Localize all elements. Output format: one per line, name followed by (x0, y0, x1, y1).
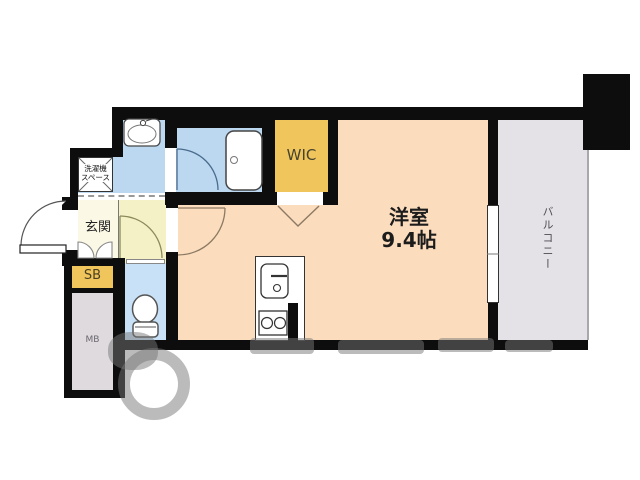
balcony-rail-line (587, 120, 589, 340)
wall-segment (70, 157, 78, 200)
wall-segment (112, 107, 123, 148)
wall-segment (488, 107, 498, 208)
balcony-label: バルコニー (533, 178, 553, 298)
wall-segment (62, 197, 78, 210)
wall-segment (166, 197, 178, 208)
laundry-line2: スペース (81, 173, 110, 182)
wall-segment (262, 120, 275, 192)
entrance-label: 玄関 (73, 221, 123, 236)
shoe-box-label: SB (72, 269, 113, 284)
wall-segment (166, 252, 178, 350)
wall-segment (113, 258, 125, 398)
room-washroom-nook (123, 120, 165, 158)
wall-segment (488, 302, 498, 350)
room-bathroom (176, 127, 262, 192)
wall-segment (64, 390, 122, 398)
wic-label: WIC (275, 147, 328, 164)
wall-segment (64, 258, 72, 398)
sliding-door-dashed-line (78, 195, 165, 197)
room-hallway (119, 200, 166, 263)
main-room-name: 洋室 (334, 206, 484, 229)
meter-box-label: MB (72, 335, 113, 345)
wall-segment (64, 258, 113, 266)
wall-segment (328, 107, 338, 205)
main-room-label: 洋室 9.4帖 (334, 206, 484, 252)
laundry-line1: 洗濯機 (84, 164, 107, 173)
toilet-door (126, 259, 165, 264)
floor-plan: 洋室 9.4帖 WIC バルコニー 玄関 SB MB 洗濯機 スペース (0, 0, 640, 480)
entrance-door-icon (20, 201, 66, 253)
window (487, 205, 499, 303)
kitchen-partition-wall (288, 303, 298, 341)
room-toilet (125, 263, 166, 340)
wic-door-opening (277, 192, 323, 205)
wall-segment (72, 288, 113, 293)
wall-segment (165, 120, 270, 128)
structural-block (583, 74, 630, 150)
wall-segment (113, 340, 588, 350)
laundry-space-label: 洗濯機 スペース (78, 164, 113, 183)
wall-segment (165, 107, 177, 148)
wall-segment (70, 148, 123, 157)
wall-segment (112, 107, 583, 120)
watermark-fragment (118, 348, 190, 420)
main-room-size: 9.4帖 (334, 229, 484, 252)
